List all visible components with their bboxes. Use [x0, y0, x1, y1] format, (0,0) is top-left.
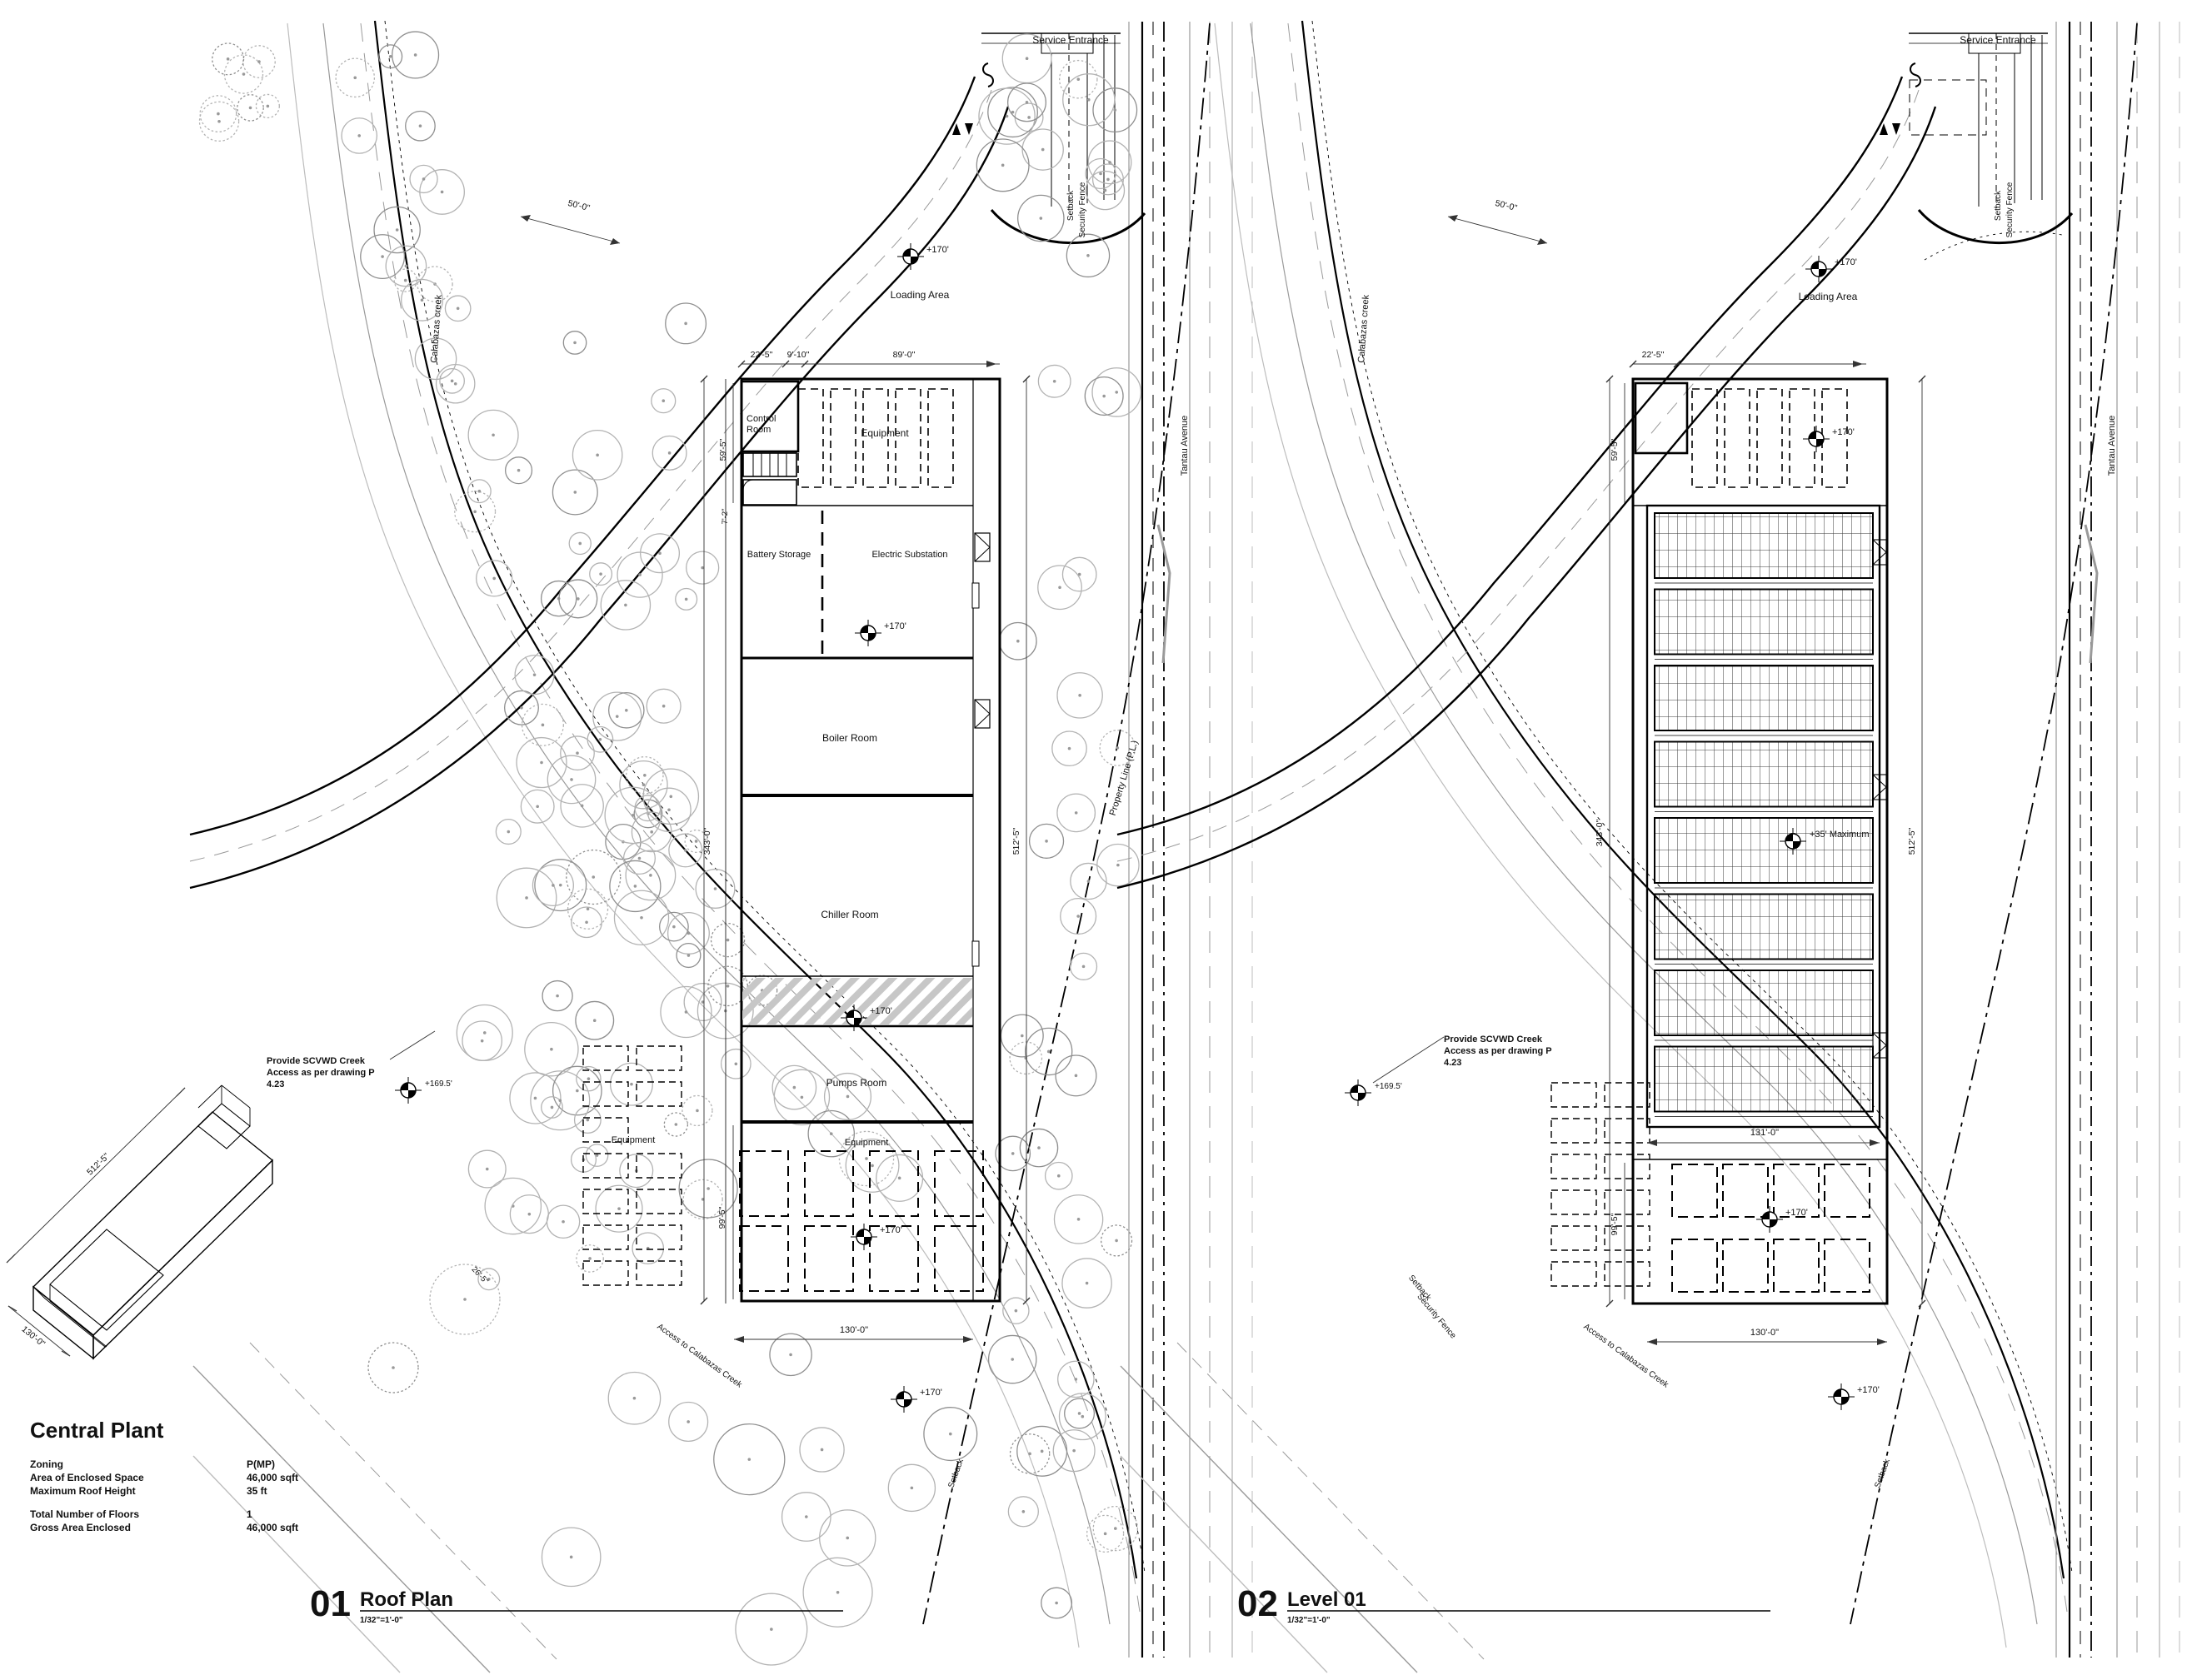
tree-center	[634, 885, 637, 888]
equipment-yard-label: Equipment	[612, 1135, 656, 1145]
dim-343: 343'-0"	[702, 827, 712, 855]
spot-elevation-label: +170'	[920, 1388, 942, 1398]
tree-center	[830, 1132, 833, 1135]
tree-center	[1041, 1450, 1044, 1453]
tree-center	[1047, 1050, 1051, 1054]
view-number: 02	[1237, 1583, 1278, 1624]
left-building	[583, 379, 1000, 1304]
left-dimensions	[701, 361, 1030, 1343]
tantau-avenue-label: Tantau Avenue	[2107, 416, 2117, 476]
tree-center	[1075, 1074, 1078, 1078]
right-site-linework	[1117, 21, 2180, 1673]
equipment-pad	[637, 1189, 682, 1214]
tree-center	[1104, 1533, 1107, 1536]
tree-center	[414, 53, 417, 57]
dim-130: 130'-0"	[1750, 1328, 1779, 1338]
tree-center	[695, 840, 698, 843]
tree-center	[578, 542, 582, 546]
tree-center	[249, 107, 252, 110]
spot-elevation-label: +170'	[880, 1225, 902, 1235]
room-label-control-1: Control	[746, 414, 776, 424]
equipment-pad	[1672, 1164, 1717, 1217]
tantau-avenue-label: Tantau Avenue	[1180, 416, 1190, 476]
tree-center	[242, 72, 246, 76]
equipment-pad	[870, 1226, 918, 1291]
spot-elevation-marker	[1803, 426, 1830, 452]
info-value: 35 ft	[247, 1485, 267, 1497]
roof-grid-band	[1655, 818, 1873, 883]
tree-center	[593, 1019, 597, 1022]
left-site-linework	[190, 21, 1252, 1673]
equipment-pad	[740, 1151, 788, 1216]
room-label-control-2: Room	[746, 425, 771, 435]
tree-center	[801, 1096, 804, 1099]
spot-elevation-marker	[1345, 1079, 1371, 1106]
dim-50: 50'-0"	[1494, 198, 1518, 213]
spot-elevation-marker	[891, 1386, 917, 1413]
tree-center	[1068, 747, 1071, 750]
view-title-right: 02 Level 01 1/32"=1'-0"	[1237, 1583, 1770, 1625]
spot-elevation-marker	[897, 243, 924, 270]
tree-center	[630, 1083, 633, 1086]
dim-22-5: 22'-5"	[1642, 350, 1665, 360]
roof-grid-band	[1655, 742, 1873, 807]
tree-center	[587, 1077, 591, 1080]
equipment-pad	[798, 389, 823, 487]
tree-center	[1057, 1174, 1061, 1178]
tree-center	[1086, 1282, 1089, 1285]
tree-center	[696, 1109, 699, 1113]
spot-elevation-marker	[1756, 1206, 1783, 1233]
tree-center	[478, 490, 482, 493]
info-label: Maximum Roof Height	[30, 1485, 136, 1497]
spot-elevation-label: +170'	[884, 621, 906, 631]
tree-center	[616, 715, 619, 718]
tree-center	[1087, 98, 1091, 102]
tree-center	[1076, 915, 1080, 918]
tree-center	[542, 724, 545, 727]
equipment-pad	[1551, 1262, 1596, 1286]
tree-center	[789, 1353, 792, 1357]
tree-center	[492, 577, 496, 581]
room-label-boiler: Boiler Room	[822, 732, 877, 744]
roof-grid-bands	[1655, 513, 1873, 1117]
equipment-pad	[740, 1226, 788, 1291]
equipment-pad	[1822, 389, 1847, 487]
access-creek-label: Access to Calabazas Creek	[656, 1322, 745, 1390]
tree-center	[217, 112, 220, 116]
iso-dim-length: 512'-5"	[85, 1151, 112, 1177]
spot-elevation-label: +170'	[1785, 1208, 1808, 1218]
equipment-pad	[1605, 1262, 1650, 1286]
view-scale: 1/32"=1'-0"	[1287, 1616, 1331, 1625]
tree-center	[581, 805, 584, 808]
tree-center	[1040, 217, 1043, 220]
tree-center	[1011, 1152, 1015, 1155]
equipment-pad	[1551, 1190, 1596, 1214]
tree-center	[257, 60, 261, 63]
tree-center	[687, 954, 691, 957]
dim-343: 343'-0"	[1595, 819, 1605, 846]
iso-dim-width: 130'-0"	[19, 1324, 47, 1349]
tree-center	[587, 1119, 590, 1122]
equipment-pad	[1551, 1083, 1596, 1107]
room-label-chiller: Chiller Room	[821, 909, 878, 920]
tree-center	[1082, 965, 1086, 969]
tree-center	[1087, 880, 1091, 883]
right-plan: Service Entrance Setback Security Fence …	[1117, 21, 2180, 1673]
tree-center	[793, 1086, 796, 1089]
tree-center	[1026, 101, 1029, 104]
tree-center	[1058, 586, 1061, 589]
dim-59-5: 59'-5"	[718, 438, 728, 461]
view-title: Level 01	[1287, 1588, 1366, 1611]
tree-center	[1028, 1453, 1031, 1456]
tree-center	[536, 805, 539, 808]
tree-center	[949, 1433, 952, 1436]
tree-center	[846, 1537, 849, 1540]
tree-center	[1021, 1034, 1024, 1038]
equipment-pad	[583, 1154, 628, 1178]
tree-center	[1011, 1358, 1014, 1361]
tree-center	[1115, 1239, 1118, 1243]
roof-grid-band	[1655, 513, 1873, 578]
setback-label: Setback	[1066, 190, 1076, 221]
view-scale: 1/32"=1'-0"	[360, 1616, 403, 1625]
spot-elevation-label: +170'	[870, 1006, 892, 1016]
tree-center	[632, 814, 635, 817]
equipment-pad	[1551, 1154, 1596, 1179]
tree-center	[707, 1187, 710, 1190]
spot-elevation-marker	[1828, 1383, 1855, 1410]
equipment-pad	[1825, 1239, 1870, 1292]
equipment-pad	[935, 1226, 983, 1291]
scvwd-note-line2: Access as per drawing P	[1444, 1046, 1552, 1056]
tree-center	[396, 228, 399, 232]
tree-center	[540, 761, 543, 765]
info-block: Central Plant Zoning P(MP) Area of Enclo…	[30, 1418, 298, 1533]
tree-center	[357, 134, 361, 137]
tree-center	[389, 55, 392, 58]
info-value: 46,000 sqft	[247, 1522, 298, 1533]
roof-grid-band	[1655, 970, 1873, 1035]
loading-area-label: Loading Area	[891, 289, 950, 301]
entrance-dashed-pad	[1910, 80, 1986, 135]
dim-59-5: 59'-5"	[1610, 438, 1620, 461]
tree-center	[454, 382, 457, 386]
equipment-pad	[1551, 1226, 1596, 1250]
tree-center	[684, 322, 687, 326]
tree-center	[624, 604, 627, 607]
tree-center	[404, 279, 407, 282]
tree-center	[534, 1097, 537, 1100]
spot-elevation-marker	[855, 620, 881, 646]
room-label-pumps: Pumps Room	[826, 1077, 887, 1089]
info-label: Zoning	[30, 1458, 63, 1470]
tree-center	[381, 255, 384, 258]
spot-elevation-label: +170'	[1832, 427, 1855, 437]
roof-grid-band	[1655, 895, 1873, 960]
setback-bottom-label: Setback	[1873, 1457, 1892, 1489]
tree-center	[588, 1257, 592, 1260]
equipment-pad	[1605, 1119, 1650, 1143]
tree-center	[735, 1062, 738, 1065]
note-leader	[390, 1031, 435, 1059]
room-label-battery: Battery Storage	[747, 550, 811, 560]
tree-center	[520, 706, 523, 710]
view-number: 01	[310, 1583, 351, 1624]
tree-center	[421, 298, 424, 302]
tree-center	[599, 572, 602, 576]
info-value: 1	[247, 1508, 252, 1520]
tree-center	[1078, 694, 1081, 697]
calabazas-creek-label: Calabazas creek	[1356, 294, 1371, 363]
isometric-key: 512'-5" 130'-0"	[7, 1085, 272, 1358]
tree-center	[647, 806, 650, 810]
tree-center	[559, 884, 562, 887]
tree-center	[570, 1556, 573, 1559]
tree-center	[481, 1039, 484, 1043]
tree-center	[633, 1397, 637, 1400]
dim-130: 130'-0"	[840, 1325, 868, 1335]
dim-89-0: 89'-0"	[893, 350, 916, 360]
tree-center	[662, 705, 666, 708]
security-fence-label: Security Fence	[1078, 182, 1087, 237]
tree-center	[562, 1220, 565, 1224]
tree-center	[576, 1089, 579, 1093]
roof-grid-band	[1655, 1047, 1873, 1112]
tree-center	[1055, 1602, 1058, 1605]
service-entrance-label: Service Entrance	[1960, 34, 2036, 46]
tree-center	[643, 774, 647, 777]
equipment-pad	[1605, 1154, 1650, 1179]
tree-center	[685, 1010, 688, 1014]
property-line-label: Property Line (P.L.)	[1108, 739, 1141, 816]
tree-center	[1078, 1412, 1081, 1415]
tree-center	[865, 1157, 868, 1160]
tree-center	[573, 341, 577, 345]
tree-center	[1053, 380, 1056, 383]
tree-center	[684, 849, 687, 852]
equipment-pad	[1723, 1239, 1768, 1292]
tree-center	[227, 57, 230, 61]
tree-center	[473, 510, 477, 513]
tree-center	[640, 916, 643, 920]
scvwd-note-line2: Access as per drawing P	[267, 1068, 375, 1078]
view-title: Roof Plan	[360, 1588, 453, 1611]
tree-center	[525, 896, 528, 900]
scvwd-note-line3: 4.23	[267, 1079, 284, 1089]
tree-center	[533, 673, 537, 676]
spot-elevation-marker	[395, 1077, 422, 1104]
tree-center	[576, 751, 579, 755]
tree-center	[898, 1177, 901, 1180]
tree-center	[353, 76, 357, 79]
tree-center	[625, 709, 628, 712]
tree-center	[1116, 746, 1120, 750]
tree-center	[486, 1168, 489, 1171]
tree-center	[1076, 77, 1080, 81]
security-fence-mid-label: Security Fence	[1415, 1292, 1458, 1340]
tree-center	[1106, 178, 1110, 182]
tree-center	[1113, 108, 1116, 112]
dim-22-5: 22'-5"	[751, 350, 773, 360]
tree-center	[596, 454, 599, 457]
info-value: 46,000 sqft	[247, 1472, 298, 1483]
equipment-pad	[1605, 1190, 1650, 1214]
dim-7-2: 7'-2"	[721, 509, 730, 525]
equipment-pad	[1757, 389, 1782, 487]
tree-center	[1037, 1146, 1041, 1149]
tree-center	[650, 830, 653, 834]
equipment-pad	[805, 1226, 853, 1291]
tree-center	[587, 908, 590, 911]
tree-center	[483, 1031, 487, 1034]
tree-center	[217, 120, 221, 123]
dim-131: 131'-0"	[1750, 1128, 1779, 1138]
tree-center	[1077, 1218, 1081, 1221]
tree-center	[392, 1366, 395, 1369]
info-title: Central Plant	[30, 1418, 164, 1443]
tree-center	[1041, 148, 1045, 152]
tree-center	[585, 920, 588, 924]
tree-center	[770, 1628, 773, 1631]
dim-9-10: 9'-10"	[787, 350, 810, 360]
tree-center	[570, 778, 573, 781]
equipment-pad	[637, 1154, 682, 1178]
tree-center	[556, 995, 559, 998]
tree-center	[592, 875, 595, 879]
equipment-pad	[1672, 1239, 1717, 1292]
room-label-equipment-bottom: Equipment	[845, 1138, 889, 1148]
dim-26-5: 26'-5"	[470, 1265, 491, 1286]
setback-bottom-label: Setback	[946, 1457, 966, 1489]
equipment-pad	[637, 1261, 682, 1285]
tree-center	[668, 451, 672, 455]
tree-center	[871, 1164, 874, 1168]
spot-elevation-label: +169.5'	[1375, 1082, 1402, 1091]
equipment-pad	[935, 1151, 983, 1216]
scvwd-note-line3: 4.23	[1444, 1058, 1461, 1068]
tree-center	[1001, 164, 1005, 167]
dim-99-5: 99'-5"	[1610, 1213, 1620, 1235]
room-label-substation: Electric Substation	[871, 550, 947, 560]
equipment-pad	[1605, 1083, 1650, 1107]
tree-center	[687, 1420, 690, 1423]
tree-center	[727, 939, 730, 942]
tree-center	[441, 191, 444, 194]
tree-center	[649, 874, 652, 877]
equipment-pad	[1825, 1164, 1870, 1217]
tree-center	[747, 1458, 751, 1461]
equipment-pad	[831, 389, 856, 487]
tree-center	[552, 884, 555, 887]
tree-center	[1015, 1309, 1018, 1313]
equipment-pad	[637, 1082, 682, 1106]
spot-elevation-marker	[851, 1224, 877, 1250]
tree-center	[1081, 1415, 1085, 1418]
tree-center	[667, 808, 671, 811]
view-title-left: 01 Roof Plan 1/32"=1'-0"	[310, 1583, 843, 1625]
tree-center	[669, 795, 672, 799]
room-label-equipment-top: Equipment	[861, 427, 909, 439]
tree-center	[1116, 864, 1120, 867]
tree-center	[821, 1448, 824, 1452]
tree-center	[1114, 1527, 1117, 1530]
tree-center	[638, 573, 642, 576]
tree-center	[577, 597, 580, 601]
tree-center	[727, 985, 730, 988]
tree-center	[1006, 115, 1009, 118]
tree-center	[457, 307, 460, 310]
note-leader	[1373, 1037, 1444, 1083]
info-label: Gross Area Enclosed	[30, 1522, 131, 1533]
tree-center	[1026, 57, 1029, 60]
tree-center	[267, 105, 270, 108]
tree-center	[701, 566, 704, 570]
tree-center	[1016, 640, 1020, 643]
equipment-pad	[1774, 1239, 1819, 1292]
info-label: Area of Enclosed Space	[30, 1472, 144, 1483]
info-label: Total Number of Floors	[30, 1508, 139, 1520]
tree-center	[617, 1207, 621, 1210]
tree-center	[642, 783, 646, 786]
tree-center	[558, 1099, 562, 1102]
tree-center	[507, 830, 510, 834]
spot-elevation-label: +170'	[926, 245, 949, 255]
tree-center	[1104, 189, 1107, 192]
tree-center	[1027, 116, 1031, 119]
security-fence-label: Security Fence	[2005, 182, 2015, 237]
tree-center	[419, 124, 422, 127]
dim-99-5: 99'-5"	[717, 1206, 727, 1229]
roof-grid-band	[1655, 590, 1873, 655]
spot-elevation-label-roof-max: +35' Maximum	[1810, 830, 1869, 840]
tree-center	[1075, 811, 1078, 815]
roof-grid-band	[1655, 666, 1873, 730]
tree-center	[1108, 161, 1111, 164]
tree-center	[662, 399, 665, 402]
tree-center	[551, 1106, 554, 1109]
tree-center	[1075, 1378, 1078, 1381]
setback-label: Setback	[1994, 190, 2003, 221]
tree-center	[451, 380, 454, 383]
spot-elevation-label: +170'	[1857, 1385, 1880, 1395]
sheet-canvas: Service Entrance Setback Security Fence …	[0, 0, 2187, 1676]
access-creek-label: Access to Calabazas Creek	[1582, 1322, 1671, 1390]
tree-center	[658, 551, 662, 555]
tree-center	[405, 265, 408, 268]
tree-center	[672, 925, 676, 929]
equipment-pad	[1725, 389, 1750, 487]
tree-center	[492, 433, 495, 436]
equipment-pad	[583, 1189, 628, 1214]
equipment-pad	[583, 1261, 628, 1285]
scvwd-note-line1: Provide SCVWD Creek	[1444, 1034, 1543, 1044]
dim-512: 512'-5"	[1011, 827, 1021, 855]
info-value: P(MP)	[247, 1458, 275, 1470]
tree-center	[1086, 254, 1090, 257]
service-entrance-label: Service Entrance	[1032, 34, 1109, 46]
tree-center	[1022, 1510, 1026, 1513]
tree-center	[911, 1487, 914, 1490]
tree-center	[422, 177, 426, 181]
left-plan: Service Entrance Setback Security Fence …	[190, 21, 1252, 1673]
dim-50: 50'-0"	[567, 198, 591, 213]
equipment-pad	[928, 389, 953, 487]
tree-center	[836, 1591, 840, 1594]
tree-center	[714, 887, 717, 890]
